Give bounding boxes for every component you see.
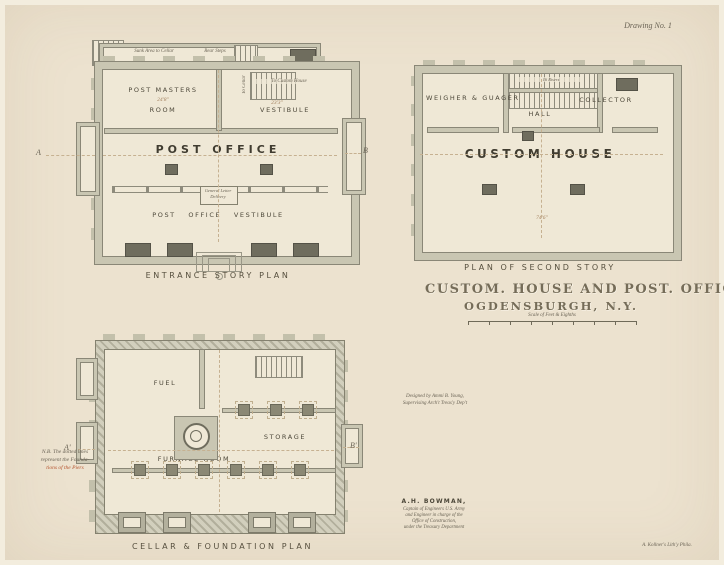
pier-footing xyxy=(134,464,146,476)
center-line xyxy=(103,155,337,156)
engineer-name: A.H. BOWMAN, xyxy=(398,498,470,505)
sheet-title-line1: CUSTOM. HOUSE AND POST. OFFICE, xyxy=(425,282,677,297)
engineer-line3: Office of Construction, xyxy=(398,519,470,524)
designed-by-line2: Supervising Arch't Treas'y Dep't xyxy=(381,401,489,406)
pier-footing xyxy=(198,464,210,476)
safe-block xyxy=(482,184,497,195)
buttress-footing xyxy=(288,512,316,533)
pier-footing xyxy=(262,464,274,476)
margin-note-line1: N.B. The dotted lines xyxy=(24,449,106,455)
pier-footing xyxy=(294,464,306,476)
partition-wall xyxy=(612,127,658,133)
section-marker-a: A xyxy=(36,148,41,157)
drawing-sheet: Drawing No. 1 Sunk Area to Cellar Rear S… xyxy=(0,0,724,565)
drawing-number: Drawing No. 1 xyxy=(600,21,696,30)
pier-footing xyxy=(166,464,178,476)
center-line xyxy=(108,450,334,451)
center-line xyxy=(218,70,219,242)
room-label-collector: COLLECTOR xyxy=(560,96,652,104)
footing-block xyxy=(125,243,151,257)
stove-block xyxy=(522,131,534,141)
section-marker-b-prime: B' xyxy=(350,441,357,450)
stair-risers-note: 16 Risers xyxy=(518,77,584,82)
pier-footing xyxy=(238,404,250,416)
furnace-circle-inner xyxy=(190,430,202,442)
sunk-area-label: Sunk Area to Cellar xyxy=(106,49,202,54)
footing-block xyxy=(293,243,319,257)
sheet-title-line2: OGDENSBURGH, N.Y. xyxy=(425,299,677,313)
room-label-room: ROOM xyxy=(115,106,211,114)
left-wing-footing xyxy=(76,358,98,400)
stove-block xyxy=(165,164,178,175)
designed-by-line1: Designed by Ammi B. Young, xyxy=(383,394,487,399)
room-label-hall: HALL xyxy=(510,110,570,118)
footing-block xyxy=(167,243,193,257)
scale-bar-ticks xyxy=(468,321,637,325)
dim-postmasters: 24'8" xyxy=(146,97,180,103)
pier-footing xyxy=(302,404,314,416)
cellar-stairs xyxy=(255,356,303,378)
cellar-plan-caption: CELLAR & FOUNDATION PLAN xyxy=(130,542,315,551)
section-line xyxy=(46,155,95,156)
stair-note: To Custom House xyxy=(256,79,322,84)
section-marker-b: B xyxy=(363,146,368,155)
footing-block xyxy=(251,243,277,257)
vault-block xyxy=(616,78,638,91)
porch-steps xyxy=(208,258,230,272)
room-label-weigher: WEIGHER & GUAGER xyxy=(426,94,518,102)
buttress-footing xyxy=(118,512,146,533)
buttress-footing xyxy=(163,512,191,533)
buttress-footing xyxy=(248,512,276,533)
partition-wall xyxy=(216,69,222,131)
dim-custom-house: 74'6" xyxy=(522,215,562,221)
vestibule-stairs xyxy=(250,72,296,100)
stove-block xyxy=(260,164,273,175)
engineer-line2: and Engineer in charge of the xyxy=(392,513,476,518)
right-pavilion xyxy=(342,118,366,195)
pier-footing xyxy=(230,464,242,476)
rear-steps-label: Rear Steps xyxy=(196,49,234,54)
section-line xyxy=(345,153,361,154)
lithographer-credit: A. Kollner's Lith'y Phila. xyxy=(620,543,714,548)
safe-block xyxy=(570,184,585,195)
margin-note-line2: represent the Founda- xyxy=(22,457,108,463)
second-story-caption: PLAN OF SECOND STORY xyxy=(455,263,625,272)
stair-rail xyxy=(508,88,598,93)
center-line xyxy=(420,154,663,155)
entrance-plan-caption: ENTRANCE STORY PLAN xyxy=(128,271,308,280)
margin-note-line3: tions of the Piers xyxy=(26,465,104,471)
room-label-postmasters: POST MASTERS xyxy=(115,86,211,94)
engineer-line1: Captain of Engineers U.S. Army xyxy=(390,507,478,512)
engineer-line4: under the Treasury Department xyxy=(392,525,476,530)
partition-wall xyxy=(427,127,499,133)
room-label-fuel: FUEL xyxy=(130,379,200,387)
left-pavilion xyxy=(76,122,100,196)
stair-note-cellar: To Cellar xyxy=(242,72,249,98)
pier-footing xyxy=(270,404,282,416)
center-line xyxy=(541,74,542,238)
center-line xyxy=(219,350,220,512)
scale-label: Scale of Feet & Eighths xyxy=(497,313,607,318)
room-label-vestibule: VESTIBULE xyxy=(238,106,332,114)
room-label-storage: STORAGE xyxy=(240,433,330,441)
